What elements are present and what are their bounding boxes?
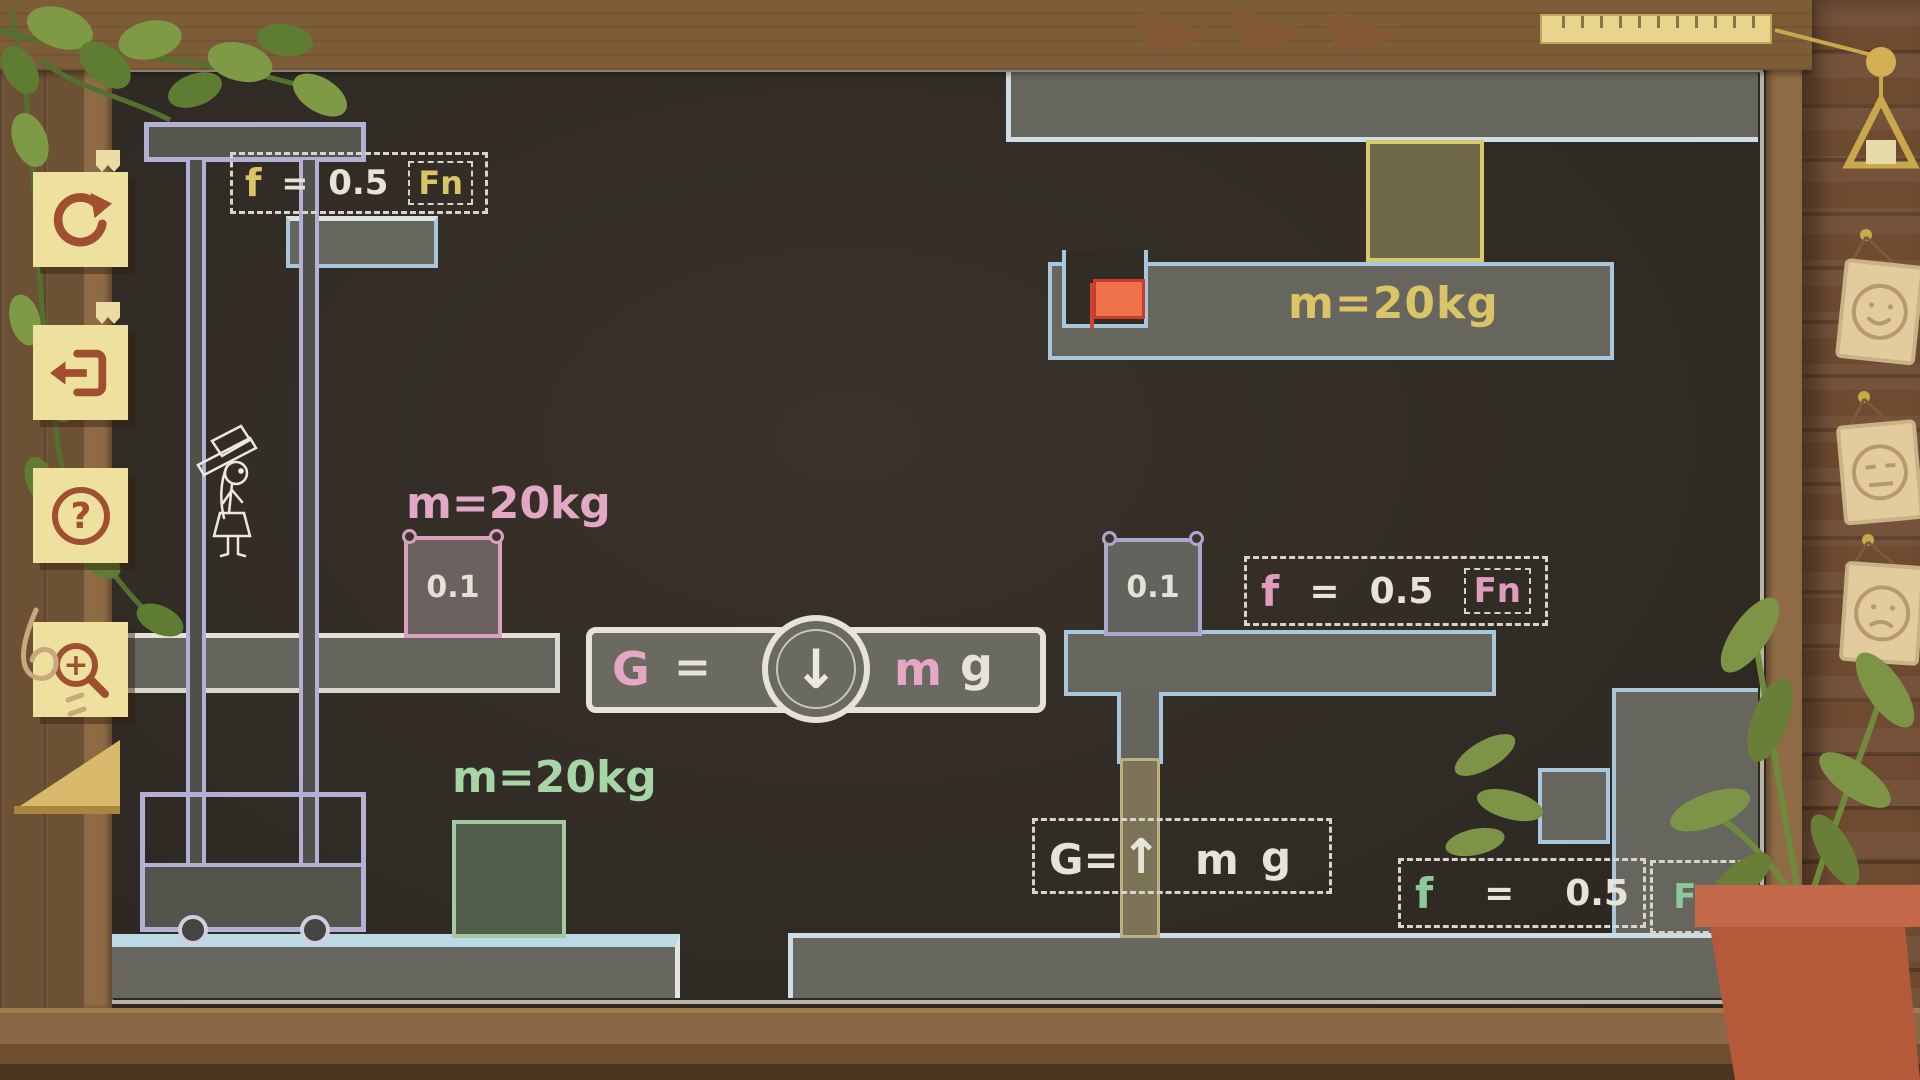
leaf-icon (1443, 726, 1547, 861)
goal-flag-icon (1093, 279, 1145, 319)
pot-rim (1695, 885, 1920, 927)
gravity-lhs: G= (1049, 835, 1119, 884)
purple-mass-block[interactable]: 0.1 (1104, 538, 1202, 636)
ceiling-platform (1006, 72, 1758, 142)
game-stage: m=20kg G = ↓ m g m=20kg 0.1 0.1 m=20kg (0, 0, 1920, 1080)
friction-f: f (1415, 869, 1433, 918)
chalk-scribble (6, 600, 106, 730)
yellow-mass-label: m=20kg (1288, 278, 1499, 329)
gravity-m-symbol: m (1195, 835, 1239, 884)
pin-icon (1102, 531, 1117, 546)
hanging-triangle-decoration (1760, 0, 1920, 190)
gravity-equals: = (674, 642, 711, 693)
elevator-wheel-icon (178, 915, 208, 945)
up-arrow-icon: ↑ (1121, 829, 1161, 885)
pink-block-friction-value: 0.1 (408, 540, 498, 634)
elevator-car-base (145, 863, 361, 927)
gravity-up-formula[interactable]: G= ↑ m g (1032, 818, 1332, 894)
face-card-smile (1837, 229, 1920, 364)
face-card-neutral (1838, 391, 1920, 523)
equals-sign: = (1309, 571, 1339, 612)
restart-button[interactable] (33, 172, 128, 267)
bird-icon (1130, 11, 1206, 51)
leaf-icon (1665, 589, 1920, 841)
exit-icon (50, 342, 112, 404)
gravity-m-symbol: m (894, 642, 942, 696)
gravity-g-symbol: g (1261, 833, 1291, 882)
triangle-weight-icon (1866, 140, 1896, 164)
friction-f: f (1261, 567, 1279, 616)
purple-block-friction-value: 0.1 (1108, 542, 1198, 632)
ruler (1540, 14, 1772, 44)
pendulum-ball-icon (1866, 47, 1896, 77)
help-button[interactable]: ? (33, 468, 128, 563)
green-mass-label: m=20kg (452, 752, 657, 803)
gravity-g-symbol: G (612, 642, 650, 696)
svg-text:?: ? (70, 496, 91, 537)
bird-icon (1318, 11, 1396, 51)
ruler-ticks (1546, 16, 1766, 28)
bird-icon (1223, 9, 1301, 49)
birds-decoration (1130, 2, 1420, 52)
right-platform (1064, 630, 1496, 696)
yellow-mass-block[interactable] (1366, 140, 1484, 262)
pin-icon (489, 529, 504, 544)
platform-stub (1117, 692, 1163, 764)
pot-body (1710, 927, 1920, 1080)
exit-button[interactable] (33, 325, 128, 420)
restart-icon (50, 189, 112, 251)
gravity-g2-symbol: g (960, 638, 993, 692)
potted-plant (1440, 580, 1920, 1080)
elevator-car[interactable] (140, 792, 366, 932)
down-arrow-icon: ↓ (768, 621, 864, 717)
help-icon: ? (49, 484, 113, 548)
pin-icon (1189, 531, 1204, 546)
pink-mass-label: m=20kg (406, 478, 611, 529)
elevator-wheel-icon (300, 915, 330, 945)
gravity-direction-dial[interactable]: ↓ (762, 615, 870, 723)
friction-coefficient-value[interactable]: 0.5 (1370, 571, 1434, 612)
green-mass-block[interactable] (452, 820, 566, 938)
wedge-shadow (14, 806, 120, 814)
